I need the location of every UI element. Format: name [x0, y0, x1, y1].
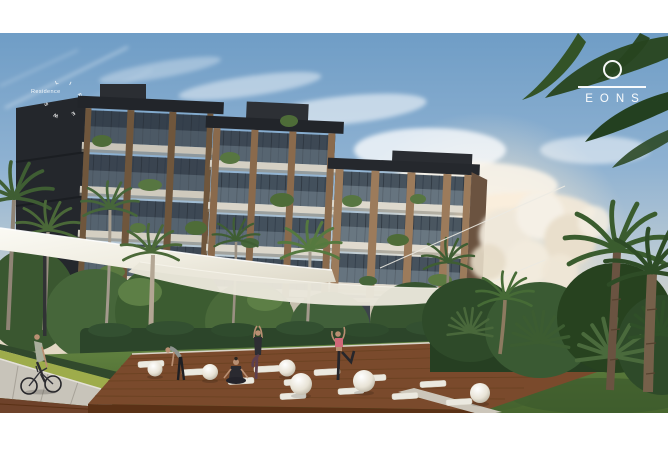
residence-label: Residence [31, 89, 61, 95]
canopy-pole [43, 244, 47, 336]
residence-circular-letter: L [53, 79, 61, 87]
listing-photo-page: EONS Residence L I F E W S [0, 0, 668, 452]
listing-photo: EONS Residence L I F E W S [0, 33, 668, 413]
ring-icon [603, 60, 622, 79]
residence-mark: Residence L I F E W S [18, 53, 110, 123]
brand-logo: EONS [560, 60, 664, 105]
logo-divider [578, 86, 646, 88]
residence-circular-letter: I [66, 80, 74, 88]
residence-circular-letter: E [69, 109, 77, 117]
residence-circular-letter: F [75, 91, 82, 98]
brand-wordmark: EONS [560, 93, 664, 105]
residence-circular-letter: S [43, 100, 51, 108]
residence-circular-letter: W [52, 111, 60, 119]
